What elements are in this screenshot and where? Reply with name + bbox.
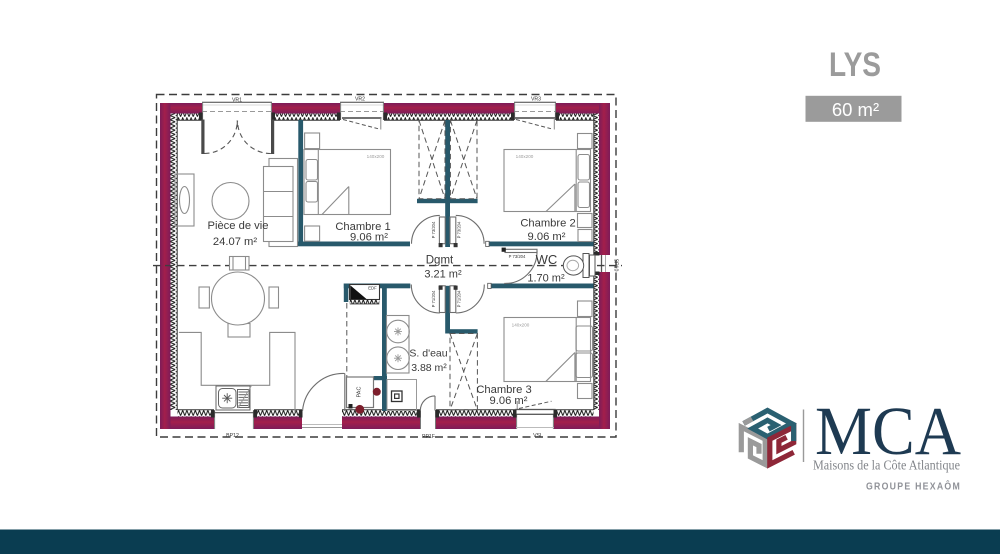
svg-text:PP1F: PP1F: [422, 434, 435, 440]
svg-text:LYS: LYS: [829, 46, 881, 84]
svg-text:9.06 m²: 9.06 m²: [350, 232, 388, 244]
svg-text:VR2: VR2: [355, 97, 365, 103]
svg-text:60 m²: 60 m²: [832, 99, 879, 120]
svg-text:P 71/204: P 71/204: [431, 290, 436, 307]
svg-text:1.70 m²: 1.70 m²: [527, 273, 565, 285]
svg-text:VSL: VSL: [533, 433, 543, 439]
svg-text:EDF: EDF: [368, 286, 377, 291]
svg-text:S. d'eau: S. d'eau: [409, 348, 447, 360]
svg-text:WC: WC: [536, 252, 558, 267]
svg-text:PAC: PAC: [357, 387, 363, 398]
svg-text:SP10: SP10: [613, 259, 619, 272]
svg-text:3.21 m²: 3.21 m²: [424, 269, 462, 281]
svg-text:VR3: VR3: [531, 97, 541, 103]
svg-text:140x200: 140x200: [512, 323, 530, 328]
svg-text:Chambre 2: Chambre 2: [520, 218, 575, 230]
svg-text:P 73/204: P 73/204: [509, 254, 526, 259]
svg-text:P 71/204: P 71/204: [457, 290, 462, 307]
svg-text:P 73/204: P 73/204: [457, 221, 462, 238]
svg-text:9.06 m²: 9.06 m²: [490, 395, 528, 407]
svg-text:9.06 m²: 9.06 m²: [528, 231, 566, 243]
svg-text:140x200: 140x200: [516, 154, 534, 159]
svg-text:140x200: 140x200: [367, 154, 385, 159]
svg-text:24.07 m²: 24.07 m²: [213, 236, 257, 248]
svg-text:P 73/204: P 73/204: [431, 221, 436, 238]
svg-text:VR1: VR1: [232, 98, 242, 104]
svg-text:GROUPE HEXAÔM: GROUPE HEXAÔM: [866, 480, 961, 493]
svg-text:Pièce de vie: Pièce de vie: [208, 220, 269, 232]
svg-text:Maisons de la Côte Atlantique: Maisons de la Côte Atlantique: [813, 458, 960, 473]
svg-text:3.88 m²: 3.88 m²: [411, 362, 447, 374]
svg-text:Dgmt: Dgmt: [426, 255, 454, 267]
svg-text:BP12: BP12: [226, 433, 239, 439]
